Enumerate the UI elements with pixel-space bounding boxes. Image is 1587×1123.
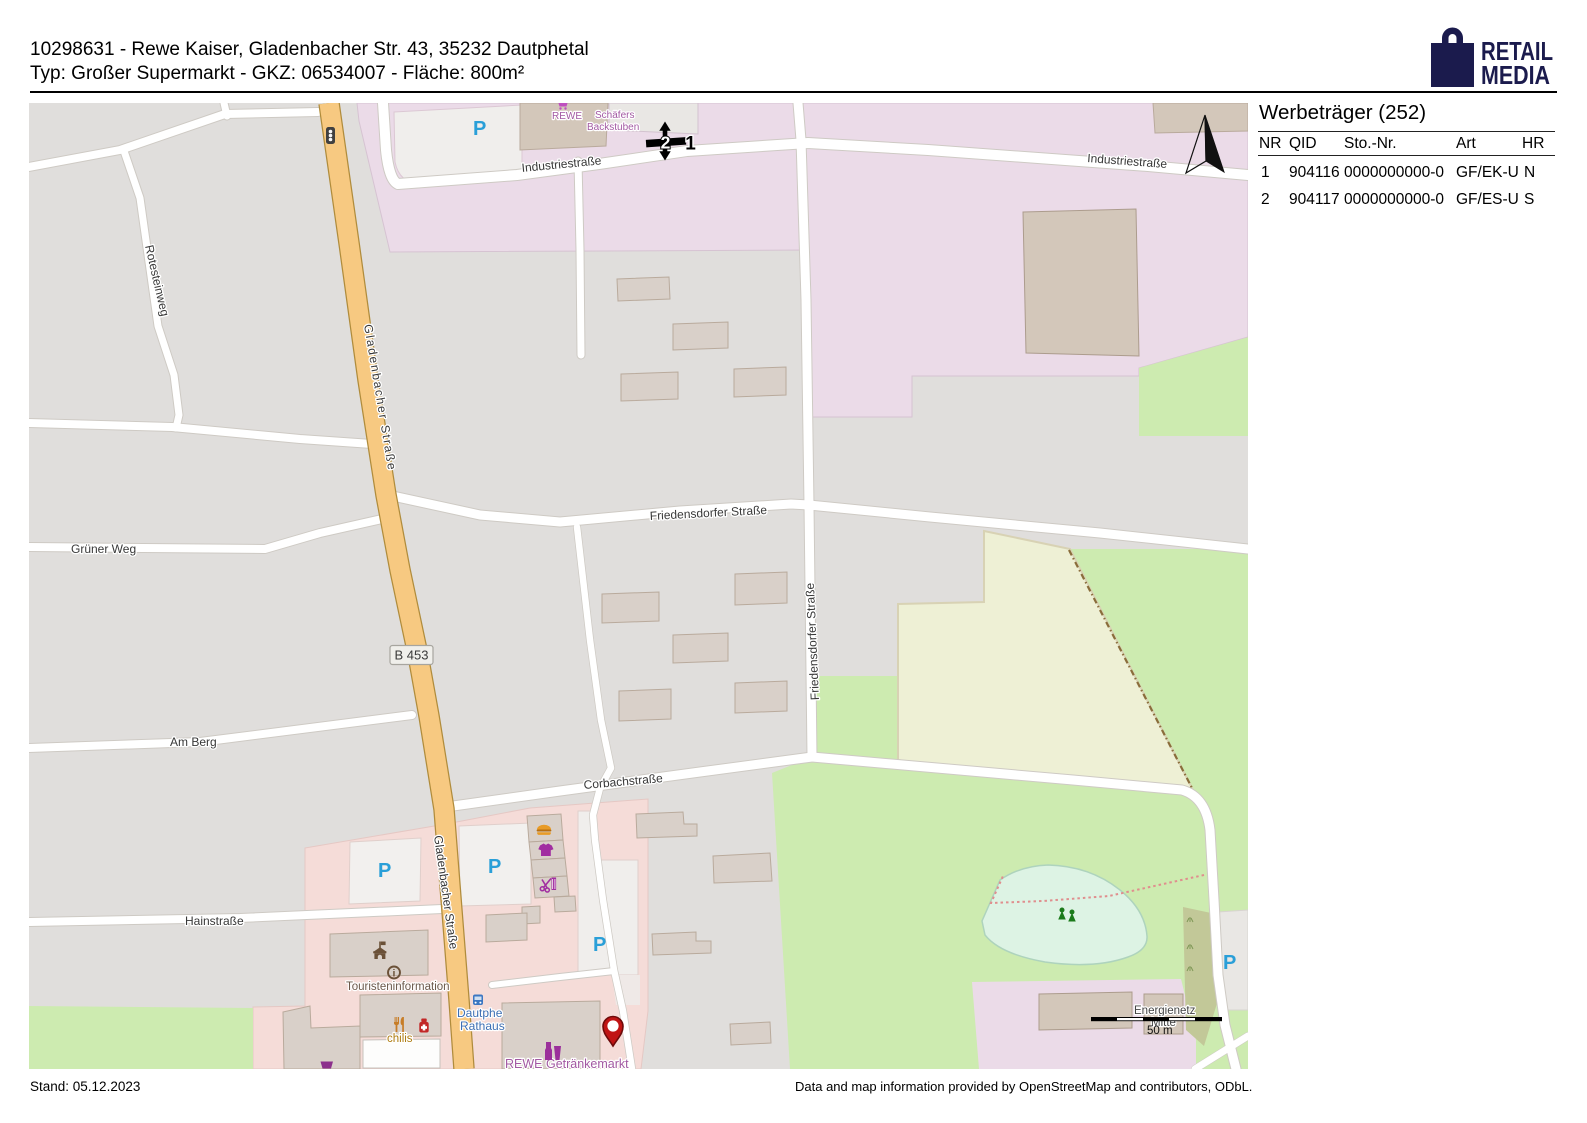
svg-text:REWE: REWE — [552, 111, 582, 122]
svg-text:P: P — [593, 934, 606, 956]
svg-text:Backstuben: Backstuben — [587, 122, 639, 133]
svg-text:B 453: B 453 — [395, 648, 429, 663]
svg-text:Am Berg: Am Berg — [170, 735, 217, 749]
svg-text:MEDIA: MEDIA — [1481, 60, 1550, 89]
svg-text:P: P — [473, 118, 486, 140]
svg-text:Rathaus: Rathaus — [460, 1019, 505, 1033]
svg-text:i: i — [393, 968, 396, 980]
svg-text:Hainstraße: Hainstraße — [185, 914, 244, 928]
svg-text:Schäfers: Schäfers — [595, 110, 634, 121]
svg-text:2: 2 — [661, 133, 671, 153]
svg-text:50 m: 50 m — [1147, 1025, 1173, 1037]
svg-text:Touristeninformation: Touristeninformation — [346, 981, 450, 993]
svg-text:Grüner Weg: Grüner Weg — [71, 542, 136, 556]
svg-text:P: P — [488, 856, 501, 878]
svg-text:Energienetz: Energienetz — [1134, 1005, 1196, 1017]
svg-text:P: P — [378, 860, 391, 882]
svg-text:1: 1 — [685, 134, 696, 155]
svg-text:REWE Getränkemarkt: REWE Getränkemarkt — [505, 1057, 629, 1069]
svg-text:chilis: chilis — [387, 1033, 413, 1045]
svg-text:P: P — [1223, 952, 1236, 974]
svg-text:Dautphe: Dautphe — [457, 1006, 503, 1020]
